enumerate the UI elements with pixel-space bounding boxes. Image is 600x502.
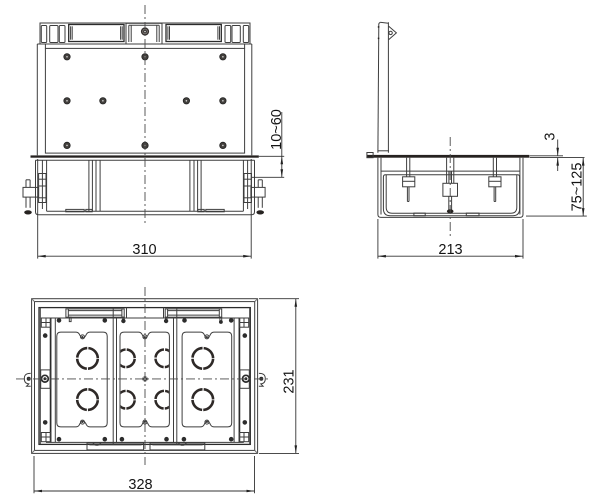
svg-text:75~125: 75~125 bbox=[569, 163, 585, 212]
svg-text:10~60: 10~60 bbox=[269, 109, 285, 150]
svg-text:3: 3 bbox=[543, 133, 559, 141]
svg-text:213: 213 bbox=[438, 242, 462, 258]
svg-text:310: 310 bbox=[132, 242, 156, 258]
svg-text:231: 231 bbox=[281, 369, 297, 393]
svg-text:328: 328 bbox=[128, 477, 152, 493]
